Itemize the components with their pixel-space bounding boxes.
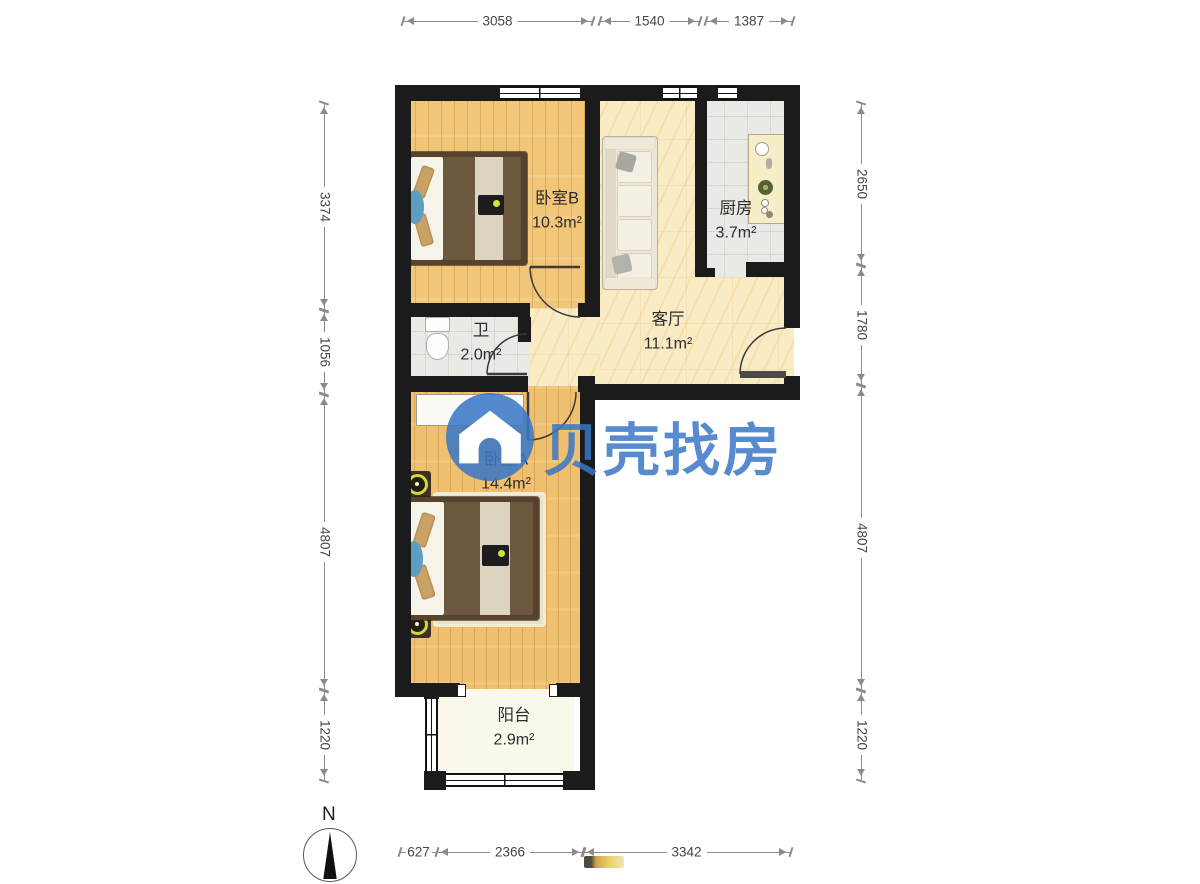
burner-dot-icon [766,211,773,218]
wall-balcony-right [580,683,595,790]
bedroom-b-label: 卧室B 10.3m² [532,187,582,234]
dim-top-1: 3058 [403,14,592,30]
wall-balcony-left-bottom [424,771,446,790]
dim-top-3: 1387 [706,14,792,30]
wall-bedroom-b-south [395,303,530,317]
sofa-armrest [605,278,655,289]
kitchen-label: 厨房 3.7m² [716,197,757,244]
balcony-door-post [549,684,558,697]
dim-value: 1780 [855,305,870,345]
room-name: 阳台 [494,704,535,728]
dim-value: 3374 [318,186,333,226]
dim-left-3: 4807 [317,394,333,690]
knob-icon [761,199,769,207]
toilet-bowl [426,333,449,360]
dim-value: 1387 [729,14,769,29]
sofa-armrest [605,138,655,149]
sofa-cushion [617,185,652,217]
beike-house-logo-icon [446,393,534,481]
watermark-text: 贝壳找房 [543,405,783,487]
bedroom-a-bed [404,497,539,620]
dim-right-1: 2650 [854,103,870,265]
room-name: 客厅 [644,308,693,332]
room-area: 11.1m² [644,332,693,355]
room-area: 10.3m² [532,211,582,234]
room-area: 2.0m² [461,343,502,366]
toilet-tank [425,317,450,332]
dim-value: 2366 [490,845,530,860]
dim-left-4: 1220 [317,690,333,780]
kitchen-window [718,86,737,100]
dim-right-2: 1780 [854,265,870,385]
dim-value: 3058 [477,14,517,29]
wall-bedroom-b-east [585,85,600,317]
dim-bottom-1: 627 [400,845,437,861]
balcony-door-post [457,684,466,697]
bathroom-label: 卫 2.0m² [461,319,502,366]
dim-left-2: 1056 [317,310,333,394]
wall-kitchen-divider [695,95,707,277]
faucet-icon [766,158,772,169]
dim-value: 1220 [318,715,333,755]
dim-value: 627 [405,845,432,860]
room-area: 2.9m² [494,728,535,751]
dim-bottom-3: 3342 [583,845,790,861]
room-name: 厨房 [716,197,757,221]
floorplan-canvas: 卧室B 10.3m² 厨房 3.7m² 客厅 11.1m² 卫 2.0m² 卧室… [0,0,1200,884]
sofa [602,136,658,290]
dim-bottom-2: 2366 [437,845,583,861]
compass-north-label: N [322,804,336,826]
dim-value: 2650 [855,164,870,204]
wall-living-bottom [594,384,800,400]
wall-divider-corner [578,376,595,392]
dim-value: 4807 [318,522,333,562]
bedroom-b-bed [405,152,527,265]
sofa-cushion [617,219,652,251]
bed-remote-panel [478,195,504,215]
sink-icon [755,142,769,156]
balcony-label: 阳台 2.9m² [494,704,535,751]
wall-balcony-left-top [424,683,439,699]
dim-value: 3342 [666,845,706,860]
dim-value: 1540 [629,14,669,29]
room-area: 3.7m² [716,221,757,244]
wall-right [784,85,800,328]
dim-right-4: 1220 [854,690,870,780]
room-name: 卫 [461,319,502,343]
living-room-window [663,86,697,100]
living-room-label: 客厅 11.1m² [644,308,693,355]
dim-left-1: 3374 [317,103,333,310]
dim-value: 4807 [855,517,870,557]
balcony-bottom-window [446,773,563,787]
bedroom-b-window [500,86,580,100]
balcony-left-window [425,699,438,771]
dim-value: 1220 [855,715,870,755]
dim-value: 1056 [318,332,333,372]
room-name: 卧室B [532,187,582,211]
wall-bathroom-east-stub [518,317,531,342]
wall-kitchen-south [746,262,786,277]
dim-top-2: 1540 [600,14,699,30]
stove-burner-icon [758,180,773,195]
wall-kitchen-foot [695,268,715,277]
bed-remote-panel [482,545,509,566]
dim-right-3: 4807 [854,385,870,690]
wall-bath-bedroom-a-divider [395,376,528,392]
